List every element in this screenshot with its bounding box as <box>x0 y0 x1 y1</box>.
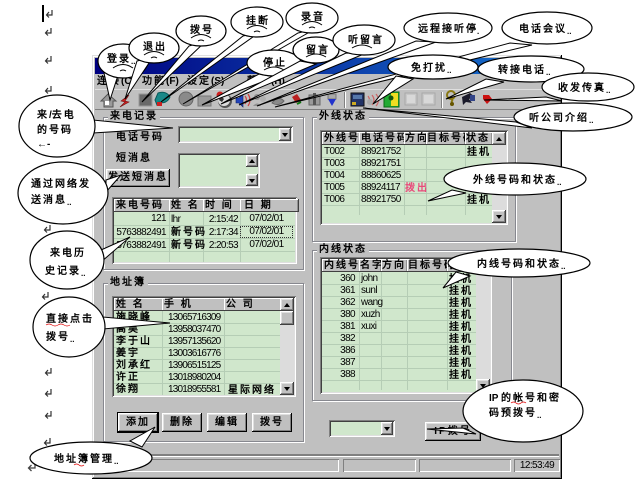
svg-text:内线号码和状态: 内线号码和状态 <box>477 257 561 270</box>
svg-text:..: .. <box>606 86 610 95</box>
svg-text:..: .. <box>131 57 135 66</box>
svg-text:..: .. <box>81 269 85 278</box>
svg-text:听公司介绍: 听公司介绍 <box>529 111 589 124</box>
svg-text:..: .. <box>114 457 118 466</box>
svg-text:听留言: 听留言 <box>348 33 384 46</box>
svg-text:送消息: 送消息 <box>30 193 67 206</box>
svg-text:免打扰: 免打扰 <box>411 61 447 74</box>
svg-text:..: .. <box>557 178 561 187</box>
svg-text:..: .. <box>561 262 565 271</box>
svg-text:收发传真: 收发传真 <box>558 81 606 94</box>
svg-text:..: .. <box>567 27 571 36</box>
svg-text:的号码: 的号码 <box>37 123 73 136</box>
svg-text:来电历: 来电历 <box>49 246 86 259</box>
svg-text:拨号: 拨号 <box>46 330 70 343</box>
svg-text:..: .. <box>537 411 541 420</box>
svg-text:..: .. <box>67 198 71 207</box>
svg-text:登录: 登录 <box>106 52 131 65</box>
svg-text:电话会议: 电话会议 <box>519 22 567 35</box>
svg-text:.: . <box>477 27 479 36</box>
svg-text:码预拨号: 码预拨号 <box>489 406 537 419</box>
svg-text:史记录: 史记录 <box>45 264 81 277</box>
svg-text:..: .. <box>70 335 74 344</box>
svg-text:..: .. <box>589 116 593 125</box>
svg-text:外线号码和状态: 外线号码和状态 <box>472 173 557 186</box>
svg-text:转接电话: 转接电话 <box>498 63 546 76</box>
svg-text:远程接听停: 远程接听停 <box>418 22 478 35</box>
svg-text:地址簿管理: 地址簿管理 <box>54 452 114 465</box>
svg-text:直接点击: 直接点击 <box>46 312 94 325</box>
svg-text:←-: ←- <box>37 139 50 150</box>
svg-text:来/去电: 来/去电 <box>36 108 76 121</box>
svg-text:..: .. <box>546 68 550 77</box>
svg-text:通过网络发: 通过网络发 <box>31 177 91 190</box>
svg-text:..: .. <box>447 66 451 75</box>
